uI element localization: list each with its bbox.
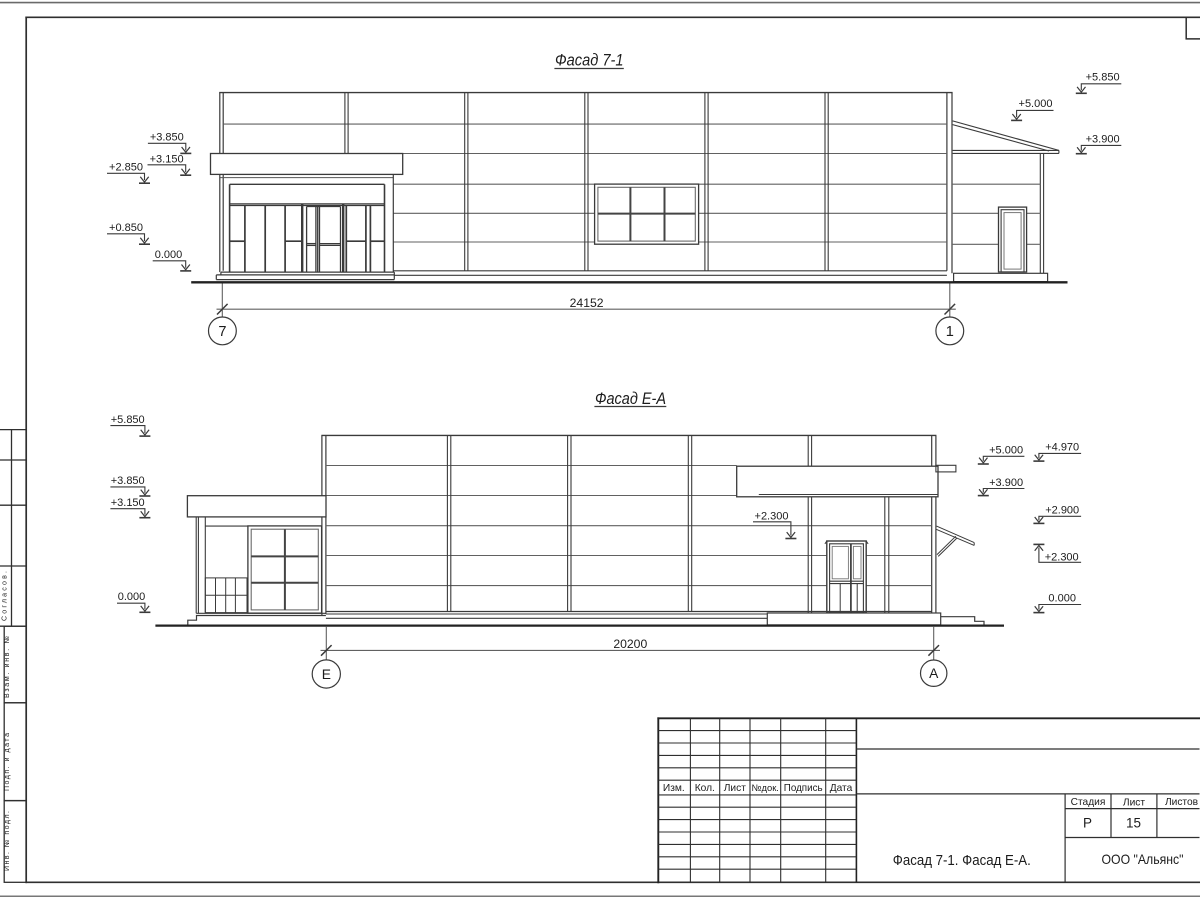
svg-text:7: 7 <box>218 324 226 340</box>
svg-text:+4.970: +4.970 <box>1045 441 1079 453</box>
svg-text:Листов: Листов <box>1165 797 1198 808</box>
svg-text:+3.900: +3.900 <box>989 477 1023 489</box>
svg-text:Подпись: Подпись <box>784 783 823 794</box>
svg-text:20200: 20200 <box>613 637 647 651</box>
svg-text:Р: Р <box>1083 816 1092 831</box>
svg-text:№док.: №док. <box>751 782 778 793</box>
svg-text:+0.850: +0.850 <box>109 222 143 234</box>
svg-text:Фасад 7-1. Фасад Е-А.: Фасад 7-1. Фасад Е-А. <box>893 853 1031 869</box>
svg-text:Согласов.: Согласов. <box>2 571 9 621</box>
svg-text:+5.850: +5.850 <box>111 414 145 426</box>
svg-text:15: 15 <box>1126 816 1141 831</box>
svg-text:Лист: Лист <box>1123 798 1145 809</box>
svg-text:+3.850: +3.850 <box>111 475 145 487</box>
svg-text:+5.000: +5.000 <box>1019 98 1053 110</box>
svg-text:+5.850: +5.850 <box>1086 71 1120 83</box>
svg-text:Стадия: Стадия <box>1071 797 1106 808</box>
svg-text:Е: Е <box>322 667 331 682</box>
svg-text:+2.300: +2.300 <box>1045 551 1079 563</box>
svg-text:24152: 24152 <box>570 296 604 310</box>
svg-text:+3.150: +3.150 <box>111 497 145 509</box>
svg-text:А: А <box>929 666 939 681</box>
svg-text:Изм.: Изм. <box>663 783 685 794</box>
svg-text:+5.000: +5.000 <box>989 445 1023 457</box>
svg-text:Кол.: Кол. <box>695 783 715 794</box>
svg-text:+2.900: +2.900 <box>1045 505 1079 517</box>
svg-text:Фасад 7-1: Фасад 7-1 <box>555 50 624 69</box>
svg-text:1: 1 <box>946 324 954 340</box>
svg-text:0.000: 0.000 <box>1048 593 1076 605</box>
svg-text:+3.850: +3.850 <box>150 132 184 144</box>
svg-text:0.000: 0.000 <box>155 249 183 261</box>
svg-text:0.000: 0.000 <box>118 591 146 603</box>
svg-text:Лист: Лист <box>724 783 746 794</box>
svg-text:Взам. инв. №: Взам. инв. № <box>4 636 11 698</box>
svg-text:+3.150: +3.150 <box>150 153 184 165</box>
svg-text:+2.850: +2.850 <box>109 162 143 174</box>
svg-text:+3.900: +3.900 <box>1086 133 1120 145</box>
svg-text:+2.300: +2.300 <box>755 511 789 523</box>
svg-text:Фасад Е-А: Фасад Е-А <box>595 389 666 408</box>
svg-text:Дата: Дата <box>830 783 853 794</box>
svg-text:Подп. и дата: Подп. и дата <box>4 733 11 791</box>
svg-text:ООО "Альянс": ООО "Альянс" <box>1102 852 1184 867</box>
